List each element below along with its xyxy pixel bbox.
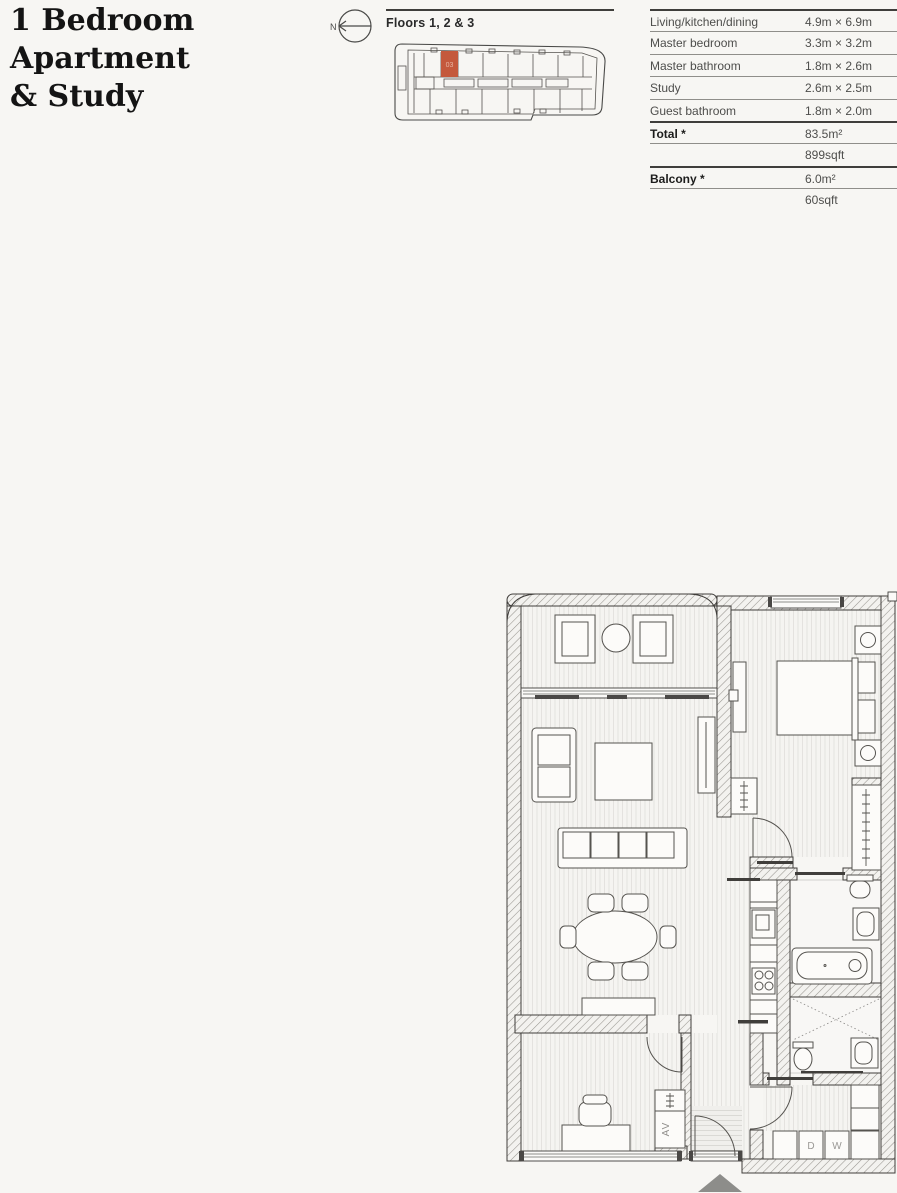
spec-row: Master bedroom3.3m × 3.2m <box>650 31 897 53</box>
spec-row-value: 6.0m² <box>805 172 836 186</box>
spec-row-value: 3.3m × 3.2m <box>805 36 872 50</box>
floors-label: Floors 1, 2 & 3 <box>386 16 614 30</box>
spec-row-value: 60sqft <box>805 193 838 207</box>
north-arrow-icon: N <box>326 4 376 46</box>
spec-row: Living/kitchen/dining4.9m × 6.9m <box>650 9 897 31</box>
spec-row-value: 83.5m² <box>805 127 842 141</box>
spec-table: Living/kitchen/dining4.9m × 6.9mMaster b… <box>650 9 897 211</box>
floor-plan: AV D W <box>505 590 897 1193</box>
building-key-plan: 03 <box>386 36 614 124</box>
spec-row: Total *83.5m² <box>650 121 897 143</box>
brochure-page: { "page": { "background": "#f7f6f3" }, "… <box>0 0 897 1193</box>
spec-row-value: 1.8m × 2.0m <box>805 104 872 118</box>
spec-row-label: Master bedroom <box>650 36 805 50</box>
spec-row: Balcony *6.0m² <box>650 166 897 188</box>
page-title: 1 Bedroom Apartment & Study <box>10 2 330 116</box>
spec-row-value: 899sqft <box>805 148 844 162</box>
spec-row-value: 1.8m × 2.6m <box>805 59 872 73</box>
spec-row: Guest bathroom1.8m × 2.0m <box>650 99 897 121</box>
spec-row-value: 4.9m × 6.9m <box>805 15 872 29</box>
av-closet-label: AV <box>661 1122 672 1137</box>
divider <box>386 9 614 11</box>
north-label: N <box>330 22 337 32</box>
spec-row: 60sqft <box>650 188 897 210</box>
spec-row-label: Total * <box>650 127 805 141</box>
spec-row-label: Study <box>650 81 805 95</box>
dryer-label: D <box>807 1141 814 1152</box>
spec-row-label: Living/kitchen/dining <box>650 15 805 29</box>
spec-row-label: Master bathroom <box>650 59 805 73</box>
spec-row-label: Balcony * <box>650 172 805 186</box>
entrance-arrow-icon <box>698 1174 742 1192</box>
washer-label: W <box>832 1141 842 1152</box>
spec-row: Study2.6m × 2.5m <box>650 76 897 98</box>
spec-row-value: 2.6m × 2.5m <box>805 81 872 95</box>
spec-row: Master bathroom1.8m × 2.6m <box>650 54 897 76</box>
spec-row-label: Guest bathroom <box>650 104 805 118</box>
spec-row: 899sqft <box>650 143 897 165</box>
key-plan-block: Floors 1, 2 & 3 03 <box>386 0 614 124</box>
unit-number: 03 <box>446 62 454 69</box>
